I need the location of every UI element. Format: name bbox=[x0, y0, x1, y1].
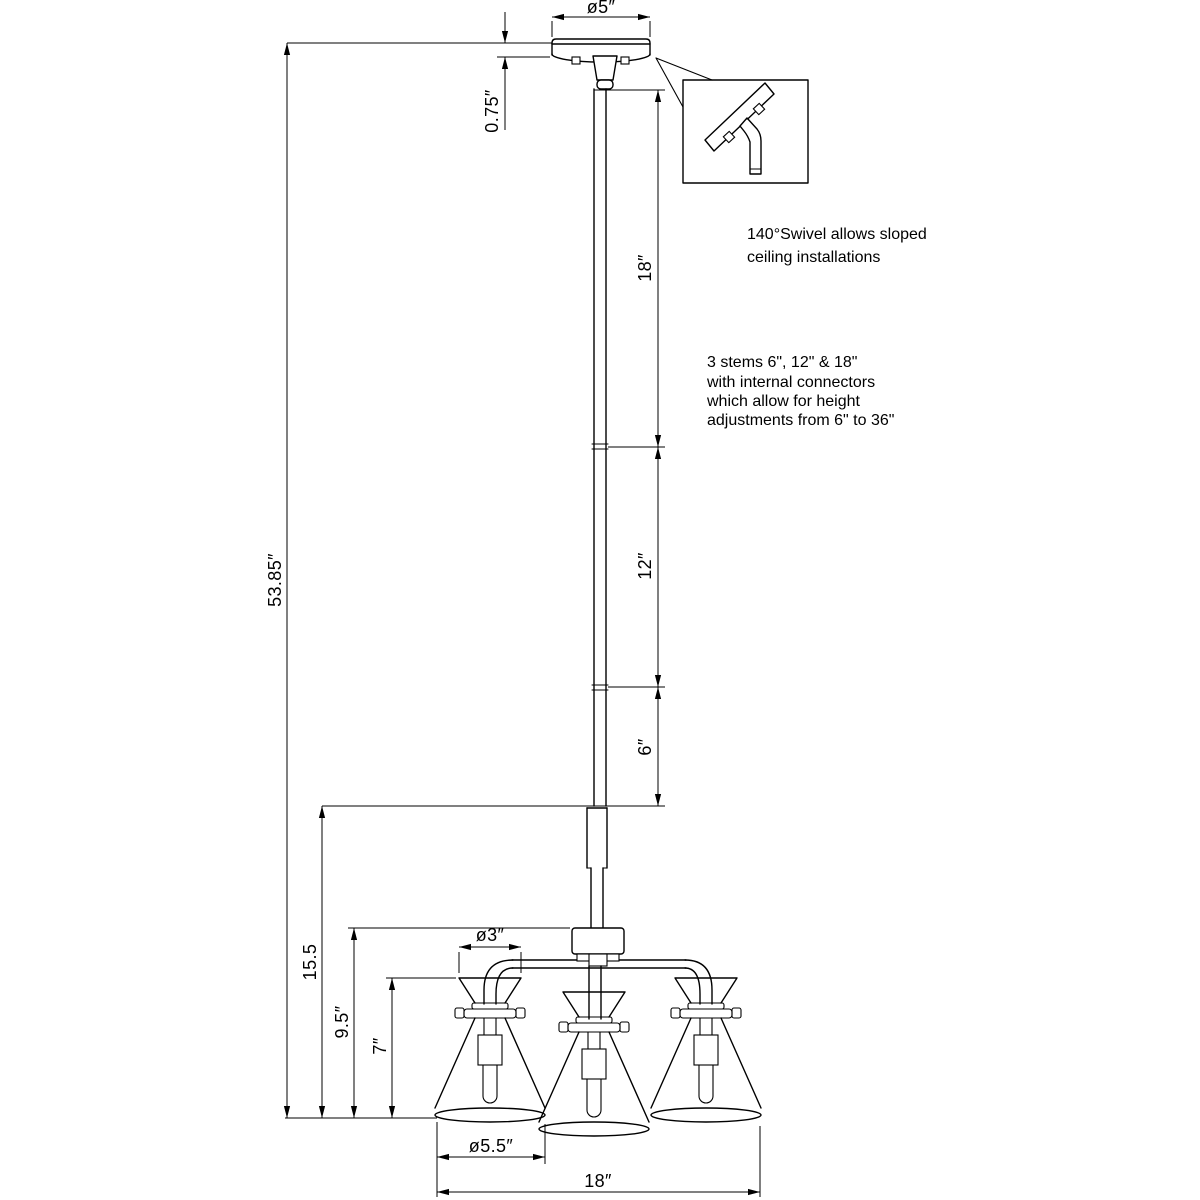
shade-top-diameter-label: ø3″ bbox=[476, 925, 505, 945]
hub-to-bottom-label: 9.5″ bbox=[332, 1005, 352, 1038]
canopy-screw-right bbox=[621, 57, 629, 64]
swivel-ball bbox=[597, 80, 613, 89]
hub-tab-right bbox=[606, 954, 619, 961]
stem-6-label: 6″ bbox=[635, 738, 655, 755]
pendant-light-dimension-drawing: ø5″ 0.75″ 53.85″ 18″ 12″ 6″ 15.5 9.5″ 7″… bbox=[0, 0, 1200, 1200]
stems-note-line1: 3 stems 6", 12" & 18" bbox=[707, 354, 857, 371]
stem-18-label: 18″ bbox=[635, 254, 655, 282]
hub-center-mount bbox=[589, 954, 607, 966]
background bbox=[0, 0, 1200, 1200]
canopy-height-label: 0.75″ bbox=[482, 89, 502, 133]
canopy-screw-left bbox=[572, 57, 580, 64]
canopy-diameter-label: ø5″ bbox=[587, 0, 616, 17]
stem-12-label: 12″ bbox=[635, 552, 655, 580]
technical-drawing-canvas: ø5″ 0.75″ 53.85″ 18″ 12″ 6″ 15.5 9.5″ 7″… bbox=[0, 0, 1200, 1200]
shade-diameter-label: ø5.5″ bbox=[469, 1136, 514, 1156]
shade-height-label: 7″ bbox=[370, 1037, 390, 1054]
stems-note-line4: adjustments from 6" to 36" bbox=[707, 412, 894, 429]
hub-tab-left bbox=[577, 954, 590, 961]
swivel-note-line1: 140°Swivel allows sloped bbox=[747, 226, 927, 243]
swivel-note-line2: ceiling installations bbox=[747, 249, 880, 266]
overall-height-label: 53.85″ bbox=[265, 553, 285, 607]
stems-note-line2: with internal connectors bbox=[706, 374, 875, 391]
body-height-label: 15.5 bbox=[300, 944, 320, 981]
canopy-socket bbox=[593, 56, 617, 80]
fixture-width-label: 18″ bbox=[584, 1171, 612, 1191]
stems-note-line3: which allow for height bbox=[706, 393, 861, 410]
